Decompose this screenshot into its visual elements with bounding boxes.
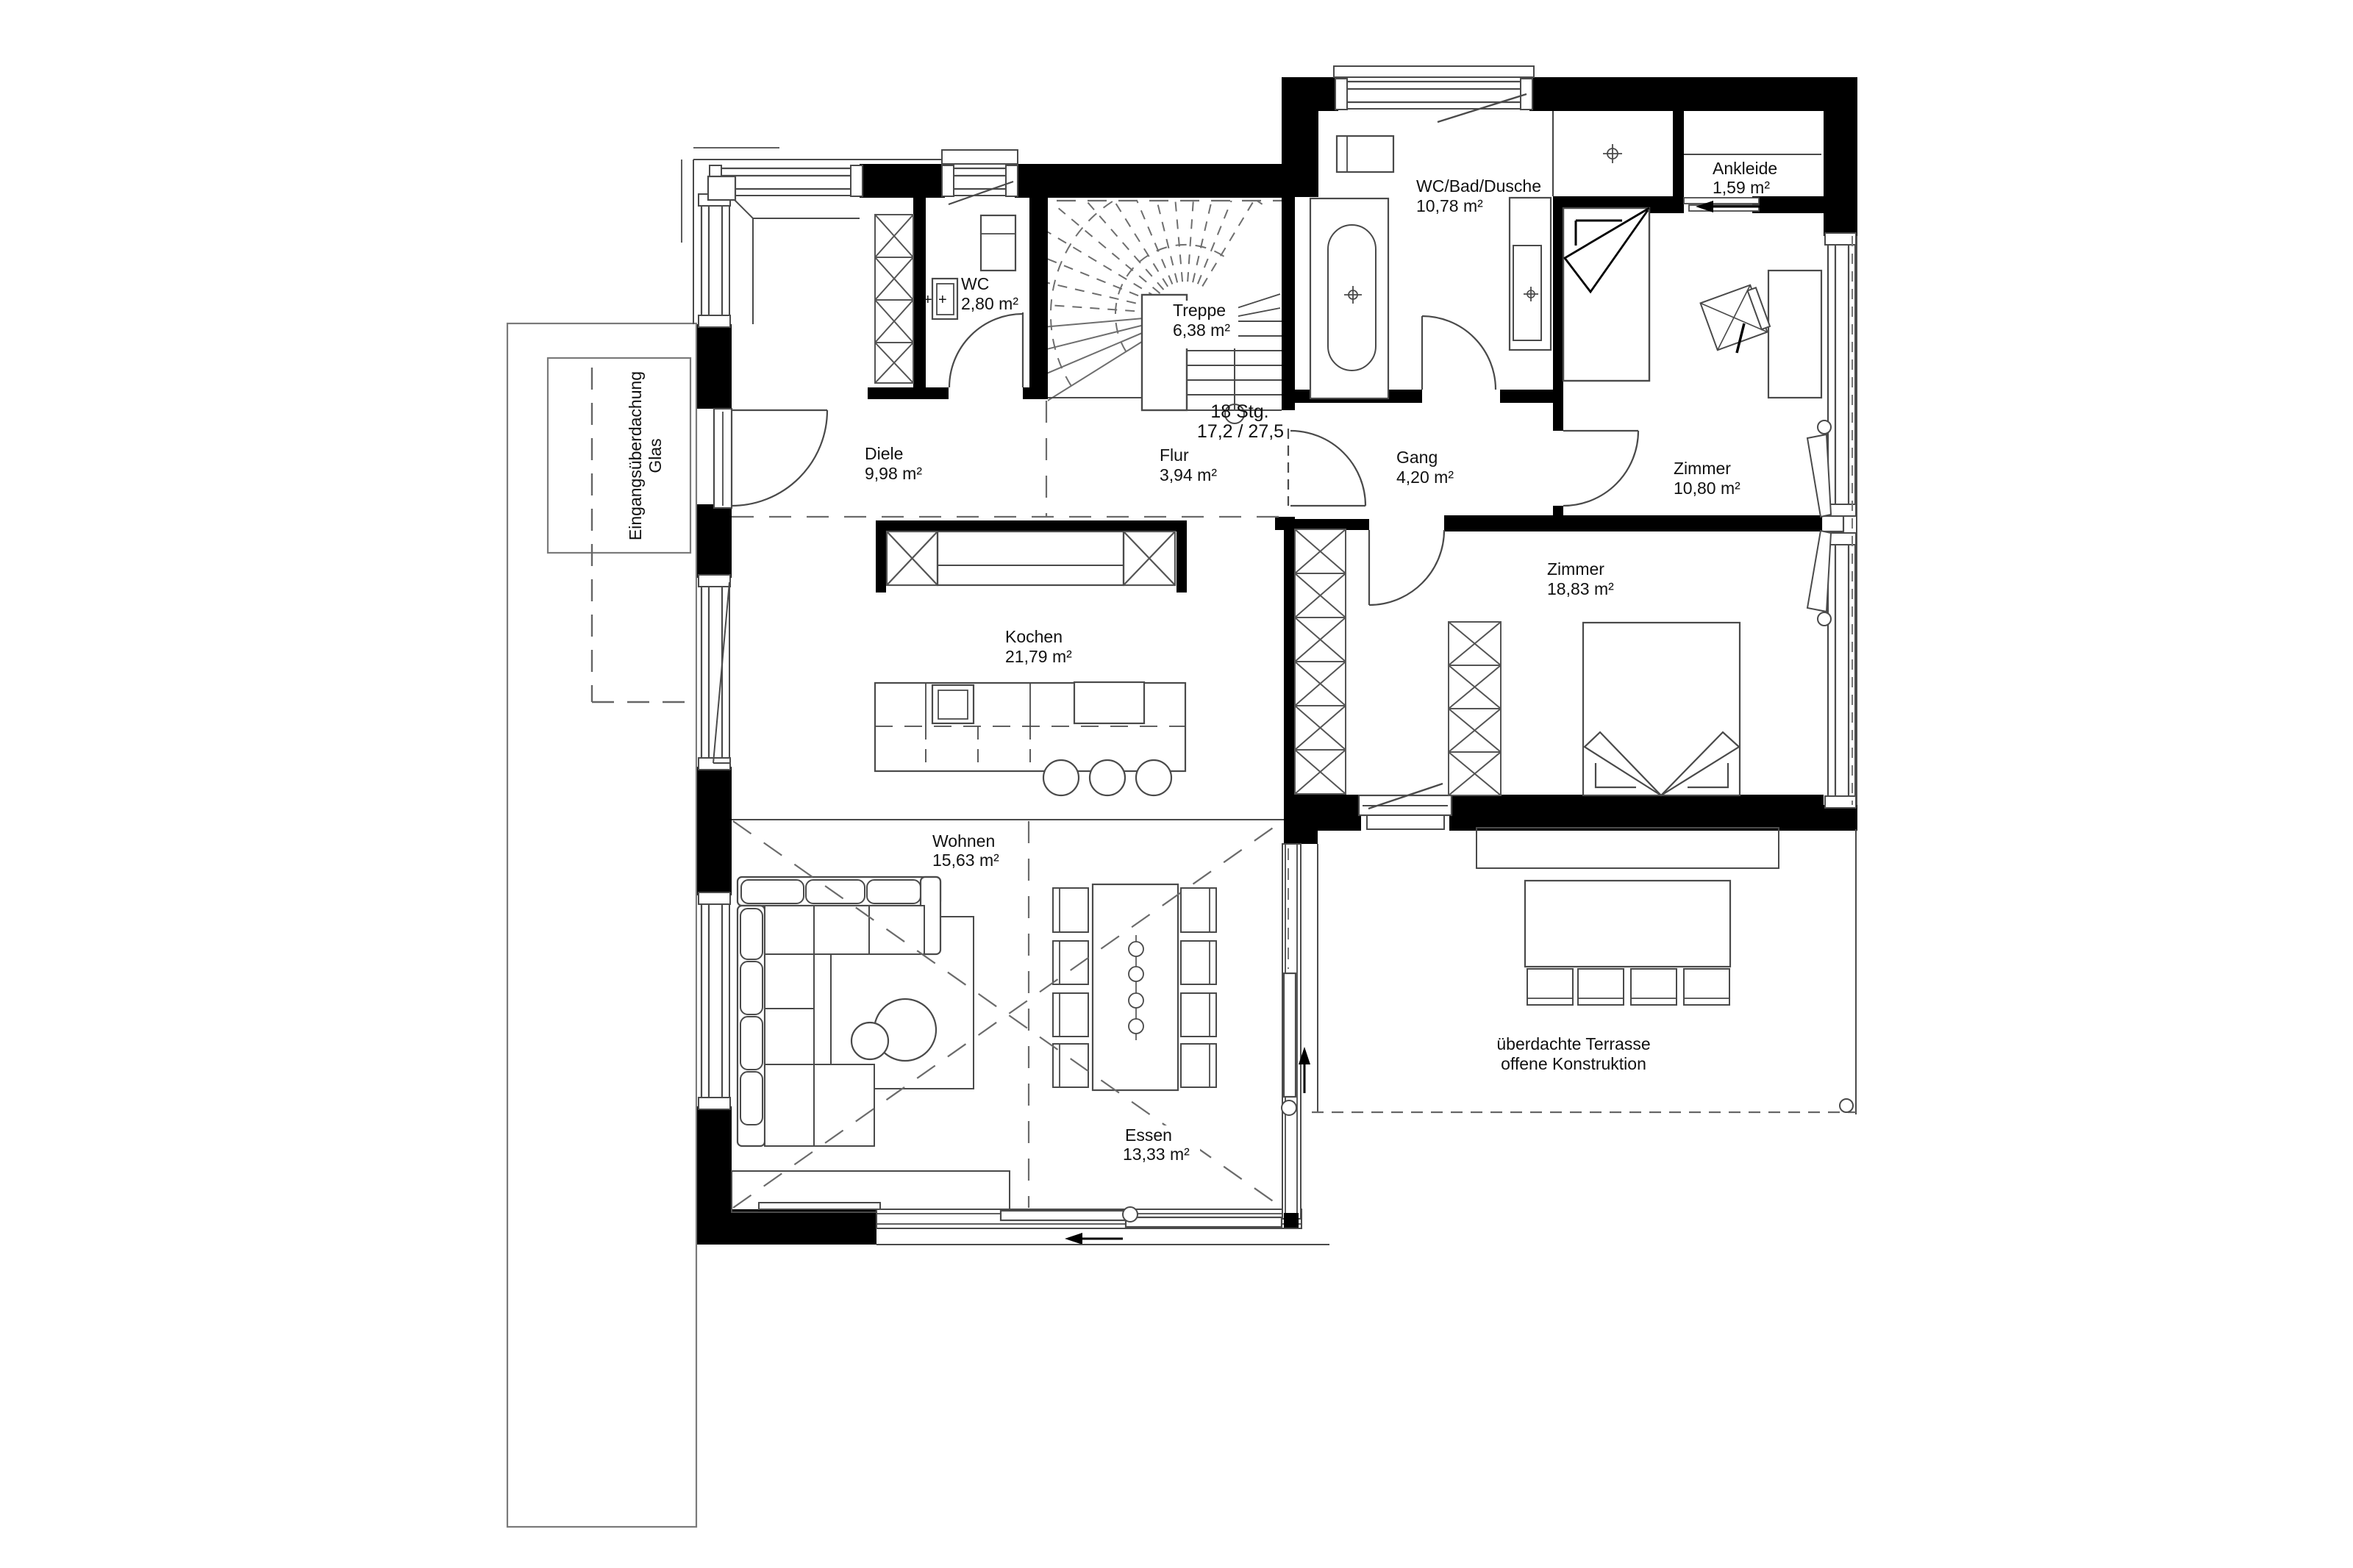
- svg-text:Diele: Diele: [865, 444, 903, 463]
- svg-text:Zimmer: Zimmer: [1674, 459, 1731, 478]
- svg-text:Treppe: Treppe: [1173, 301, 1226, 320]
- svg-text:überdachte Terrasse: überdachte Terrasse: [1496, 1034, 1650, 1053]
- svg-text:Eingangsüberdachung: Eingangsüberdachung: [626, 371, 645, 540]
- svg-text:2,80 m²: 2,80 m²: [961, 294, 1018, 313]
- svg-text:18 Stg.: 18 Stg.: [1210, 401, 1268, 422]
- svg-text:4,20 m²: 4,20 m²: [1396, 468, 1454, 487]
- svg-text:Ankleide: Ankleide: [1713, 159, 1777, 178]
- svg-text:6,38 m²: 6,38 m²: [1173, 321, 1230, 340]
- svg-text:1,59 m²: 1,59 m²: [1713, 178, 1770, 197]
- svg-text:Zimmer: Zimmer: [1547, 559, 1604, 579]
- svg-text:17,2 / 27,5: 17,2 / 27,5: [1197, 421, 1284, 442]
- svg-text:Glas: Glas: [646, 438, 665, 473]
- svg-text:+: +: [938, 292, 947, 308]
- svg-text:Wohnen: Wohnen: [932, 831, 995, 851]
- svg-text:15,63 m²: 15,63 m²: [932, 851, 999, 870]
- svg-text:21,79 m²: 21,79 m²: [1005, 647, 1072, 666]
- svg-text:+: +: [924, 292, 932, 308]
- svg-text:10,78 m²: 10,78 m²: [1416, 196, 1483, 215]
- svg-text:Flur: Flur: [1160, 445, 1189, 465]
- svg-text:Kochen: Kochen: [1005, 627, 1063, 646]
- svg-text:Essen: Essen: [1125, 1125, 1172, 1145]
- svg-text:offene Konstruktion: offene Konstruktion: [1501, 1054, 1646, 1073]
- svg-text:9,98 m²: 9,98 m²: [865, 464, 922, 483]
- svg-text:18,83 m²: 18,83 m²: [1547, 579, 1614, 598]
- svg-text:WC/Bad/Dusche: WC/Bad/Dusche: [1416, 176, 1541, 196]
- svg-text:13,33 m²: 13,33 m²: [1123, 1145, 1190, 1164]
- svg-text:Gang: Gang: [1396, 448, 1438, 467]
- svg-text:WC: WC: [961, 274, 989, 293]
- svg-text:3,94 m²: 3,94 m²: [1160, 465, 1217, 484]
- svg-text:10,80 m²: 10,80 m²: [1674, 479, 1740, 498]
